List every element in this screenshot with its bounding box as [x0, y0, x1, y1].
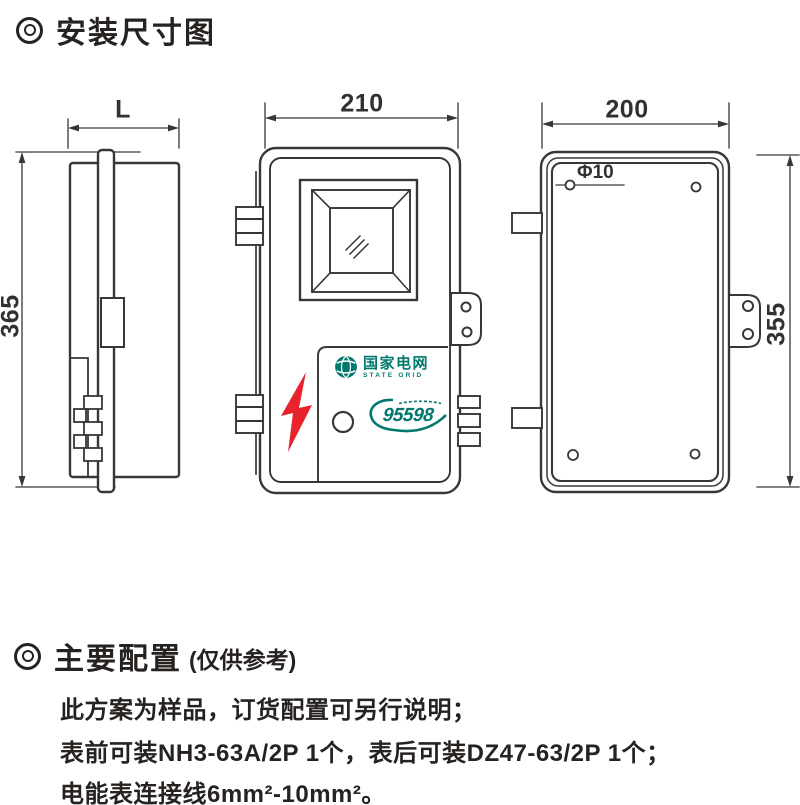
- config-note-line: 电能表连接线6mm²-10mm²。: [60, 774, 386, 805]
- section-config-subtitle: (仅供参考): [189, 641, 296, 675]
- side-latch-bump: [101, 298, 124, 347]
- installation-dimension-drawing: [0, 0, 800, 620]
- config-note-line: 此方案为样品，订货配置可另行说明；: [60, 690, 477, 725]
- rear-lock-bracket: [729, 295, 760, 347]
- rear-view: [512, 103, 799, 492]
- dim-label-rear-width: 200: [605, 96, 648, 125]
- rear-side-tabs: [512, 213, 542, 428]
- dim-label-front-width: 210: [340, 90, 383, 119]
- dim-label-rear-height: 355: [763, 302, 792, 345]
- state-grid-emblem-icon: [334, 355, 358, 379]
- side-view: [16, 119, 179, 492]
- front-side-tabs: [458, 396, 480, 446]
- dim-label-side-height: 365: [0, 294, 26, 337]
- section-dimensions-header: 安装尺寸图: [16, 8, 216, 52]
- dim-label-mount-hole: Φ10: [577, 162, 614, 184]
- section-config-header: 主要配置 (仅供参考): [14, 634, 296, 678]
- section-bullet-icon: [14, 643, 41, 670]
- section-dimensions-title: 安装尺寸图: [56, 8, 216, 52]
- hotline-logo: 95598: [366, 397, 450, 437]
- section-bullet-icon: [16, 17, 43, 44]
- rear-outer-outline: [541, 152, 729, 492]
- config-note-line: 表前可装NH3-63A/2P 1个，表后可装DZ47-63/2P 1个；: [60, 733, 671, 768]
- page: 安装尺寸图 L 365 210 200 355 Φ10 国家电网 STATE G…: [0, 0, 800, 805]
- state-grid-name-cn: 国家电网: [363, 355, 429, 372]
- state-grid-wordmark: 国家电网 STATE GRID: [363, 355, 429, 380]
- front-lock-bracket: [451, 293, 481, 345]
- section-config-title: 主要配置: [54, 634, 182, 678]
- dim-label-side-width: L: [115, 96, 131, 125]
- state-grid-name-en: STATE GRID: [363, 372, 429, 380]
- state-grid-logo: 国家电网 STATE GRID: [334, 355, 429, 380]
- hotline-number: 95598: [378, 405, 438, 427]
